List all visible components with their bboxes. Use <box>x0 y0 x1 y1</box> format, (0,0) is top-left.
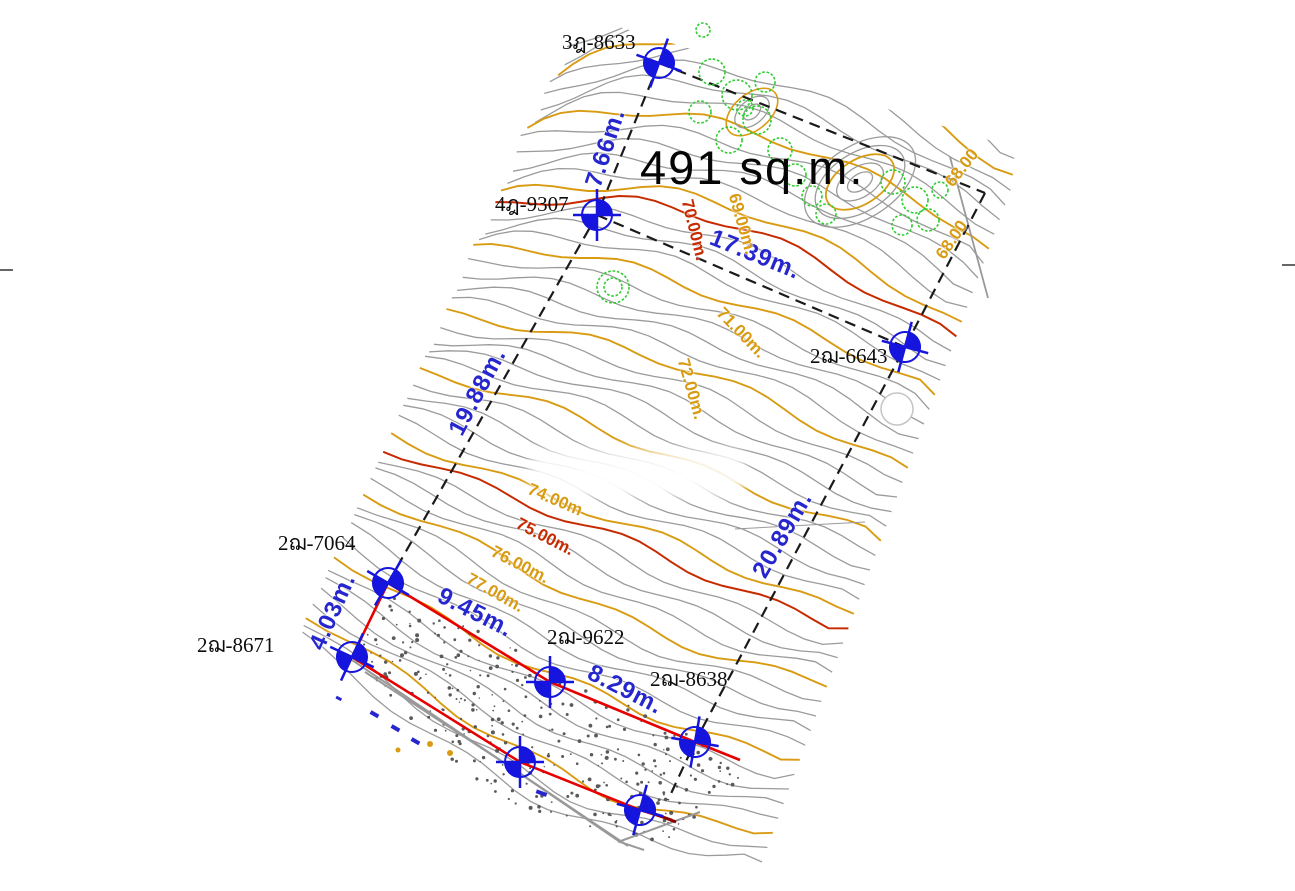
survey-point-label: 2ฌ-8638 <box>650 663 727 696</box>
erased-dimension-fragments <box>335 696 547 797</box>
white-circle-mark <box>881 393 913 425</box>
contour-map-svg <box>0 0 1295 891</box>
survey-point-label: 2ฌ-7064 <box>278 527 355 560</box>
survey-marker-icon <box>526 656 574 708</box>
survey-point-label: 2ฌ-9622 <box>547 621 624 654</box>
survey-point-label: 3ฎ-8633 <box>562 26 636 59</box>
survey-marker-icon <box>628 30 691 95</box>
survey-marker-icon <box>354 548 422 617</box>
survey-point-label: 4ฎ-9307 <box>495 188 569 221</box>
survey-point-label: 2ฌ-6643 <box>810 340 887 373</box>
area-label: 491 sq.m. <box>640 140 864 195</box>
survey-marker-icon <box>667 712 723 772</box>
erased-contour-fragments <box>396 741 454 756</box>
survey-map-canvas: 491 sq.m. 3ฎ-8633 4ฎ-9307 2ฌ-6643 2ฌ-706… <box>0 0 1295 891</box>
watermark <box>575 468 695 490</box>
survey-point-label: 2ฌ-8671 <box>197 629 274 662</box>
